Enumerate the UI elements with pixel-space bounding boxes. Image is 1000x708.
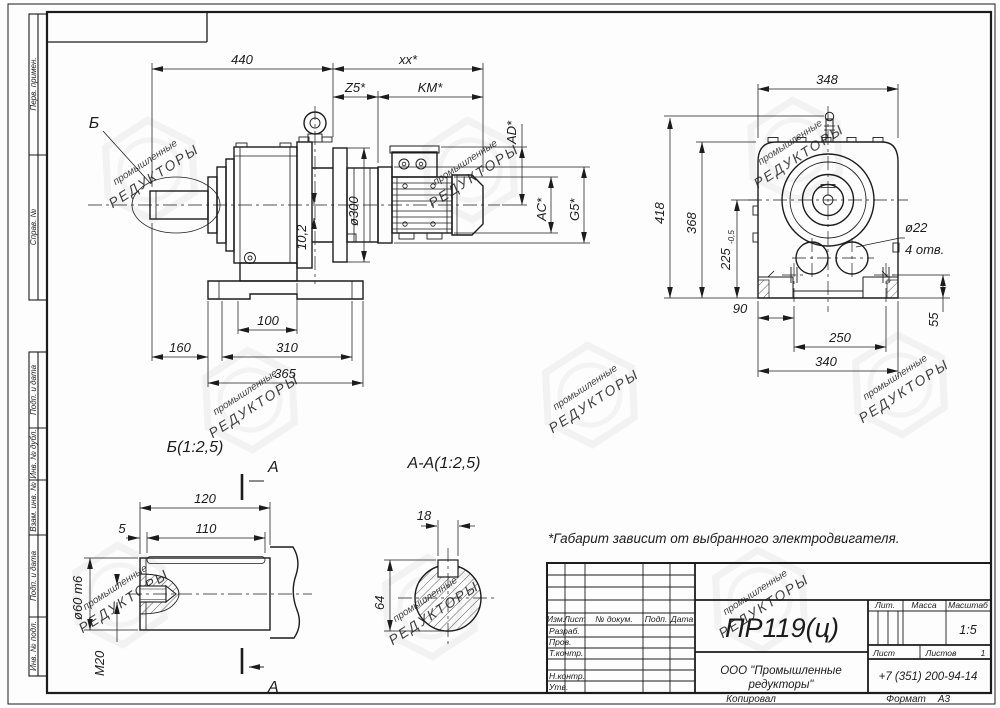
section-label-a-top: А <box>267 459 279 476</box>
front-view: 348 418 368 225 -0,5 ø22 4 отв. 90 250 3… <box>652 72 950 377</box>
dim-225: 225 <box>718 248 733 271</box>
copied-label: Копировал <box>726 694 776 705</box>
dim-shaft-dia: ø60 m6 <box>70 575 85 620</box>
detail-b-extension-lines <box>84 502 270 642</box>
dim-hole-count: 4 отв. <box>905 242 944 257</box>
col-sign: Подп. <box>645 614 668 624</box>
mass-label: Масса <box>911 600 936 610</box>
dim-310: 310 <box>276 340 298 355</box>
col-izm: Изм. <box>547 614 565 624</box>
main-dimension-texts: 440 xx* Z5* KM* AD* AC* G5* ø300 10,2 10… <box>169 52 582 381</box>
company-name: редукторы" <box>748 679 815 691</box>
sheets-label: Листов <box>925 648 958 658</box>
foot-base <box>208 281 363 299</box>
scale-label: Масштаб <box>948 600 989 610</box>
dim-100: 100 <box>257 313 279 328</box>
dim-365: 365 <box>274 366 296 381</box>
col-doc: № докум. <box>595 614 632 624</box>
hub-break <box>270 547 299 638</box>
dim-340: 340 <box>815 354 837 369</box>
col-date: Дата <box>670 614 694 624</box>
stamp-label: Взам. инв. № <box>29 482 38 532</box>
corner-reference-box <box>47 12 207 42</box>
row-prov: Пров. <box>549 637 571 647</box>
dim-g5: G5* <box>567 198 582 221</box>
detail-b-title: Б(1:2,5) <box>167 439 224 456</box>
dim-thread: М20 <box>92 650 107 676</box>
dim-64: 64 <box>372 596 387 610</box>
section-cut-marks: А А <box>242 459 279 696</box>
housing-outline <box>753 112 899 298</box>
dim-ac: AC* <box>534 197 549 222</box>
dim-flange-dia: ø300 <box>346 196 361 226</box>
dim-120: 120 <box>194 491 216 506</box>
main-view: Б 440 xx* Z5* KM* AD* AC* G5* ø300 10,2 … <box>88 52 943 387</box>
stamp-label: Справ. № <box>29 208 38 245</box>
section-label-a-bottom: А <box>267 679 279 696</box>
format-label: Формат <box>886 694 926 705</box>
stamp-label: Подп. и дата <box>29 364 38 415</box>
row-utv: Утв. <box>548 682 568 692</box>
format-value: А3 <box>937 694 951 705</box>
dim-250: 250 <box>828 330 851 345</box>
dim-55: 55 <box>926 312 941 327</box>
dim-km: KM* <box>418 80 444 95</box>
dim-368: 368 <box>684 212 699 234</box>
stamp-label: Подп. и дата <box>29 550 38 601</box>
watermark-pattern: промышленныеРЕДУКТОРЫ промышленныеРЕДУКТ… <box>53 85 968 671</box>
lit-label: Лит. <box>874 600 895 610</box>
dim-160: 160 <box>169 340 191 355</box>
dim-5: 5 <box>118 521 126 536</box>
dim-hole-dia: ø22 <box>905 220 928 235</box>
drawing-sheet: промышленныеРЕДУКТОРЫ промышленныеРЕДУКТ… <box>0 0 1000 708</box>
front-centerlines <box>748 106 908 312</box>
dim-offset: 10,2 <box>294 224 309 250</box>
dim-225-tol: -0,5 <box>727 230 736 244</box>
scale-value: 1:5 <box>959 623 976 637</box>
dim-90: 90 <box>733 301 748 316</box>
dim-418: 418 <box>652 202 667 224</box>
stamp-label: Инв. № дубл. <box>29 429 38 478</box>
row-tkontr: Т.контр. <box>549 648 583 658</box>
dim-110: 110 <box>196 521 217 536</box>
dim-ad: AD* <box>504 120 519 145</box>
sheets-value: 1 <box>981 648 986 658</box>
dim-440: 440 <box>231 52 253 67</box>
company-phone: +7 (351) 200-94-14 <box>879 671 978 683</box>
company-name: ООО "Промышленные <box>720 665 842 677</box>
col-list: Лист <box>563 614 586 624</box>
row-nkontr: Н.контр. <box>549 671 585 681</box>
dim-18: 18 <box>417 508 432 523</box>
engineering-drawing: промышленныеРЕДУКТОРЫ промышленныеРЕДУКТ… <box>0 0 1000 708</box>
dim-z5: Z5* <box>344 80 366 95</box>
detail-b-label: Б <box>89 115 99 132</box>
row-razrab: Разраб. <box>549 626 580 636</box>
document-number: ПР119(ц) <box>725 613 839 643</box>
dim-xx: xx* <box>398 52 418 67</box>
stamp-label: Инв. № подл. <box>29 621 38 671</box>
front-dimension-texts: 348 418 368 225 -0,5 ø22 4 отв. 90 250 3… <box>652 72 944 369</box>
stamp-label: Перв. примен. <box>29 57 38 110</box>
dim-348: 348 <box>816 72 838 87</box>
sheet-label: Лист <box>872 648 895 658</box>
footnote: *Габарит зависит от выбранного электродв… <box>548 531 899 546</box>
section-aa-view: А-А(1:2,5) 18 64 <box>372 455 498 648</box>
section-aa-title: А-А(1:2,5) <box>407 455 481 472</box>
